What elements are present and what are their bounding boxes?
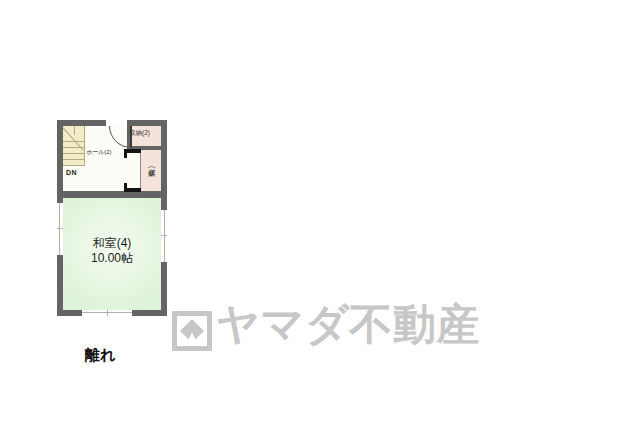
- storage2-label: 収納(2): [129, 129, 150, 138]
- stairs-down-label: DN: [66, 169, 77, 176]
- divider-wall: [57, 191, 167, 198]
- window-left-mid-tick: [57, 228, 63, 229]
- door-swing-arc: [109, 126, 131, 148]
- floor-plan-page: 収納(3): [0, 0, 640, 445]
- washitsu-room-name: 和室(4): [63, 236, 161, 251]
- building-caption: 離れ: [85, 346, 115, 365]
- closet-opening-bottom-tick: [124, 183, 127, 188]
- window-right: [161, 210, 167, 262]
- storage3-floor: 収納(3): [141, 150, 161, 191]
- washitsu-room-label: 和室(4) 10.00帖: [63, 236, 161, 266]
- washitsu-room-area: 10.00帖: [63, 251, 161, 266]
- window-bottom: [82, 310, 132, 316]
- window-bottom-mid-tick: [107, 310, 108, 316]
- yamada-diamond-logo-icon: [172, 311, 212, 351]
- closet-opening-top-tick: [124, 153, 127, 158]
- stair-winder-line: [74, 126, 75, 135]
- closet-opening-bottom-bracket: [124, 188, 141, 192]
- window-right-center-line: [164, 210, 165, 262]
- window-right-mid-tick: [161, 235, 167, 236]
- storage3-label: 収納(3): [147, 164, 156, 177]
- window-left-center-line: [59, 203, 60, 255]
- watermark-brand-text: ヤマダ不動産: [216, 301, 480, 348]
- top-wall-left-segment: [57, 120, 106, 126]
- hall-label: ホール(2): [86, 148, 112, 157]
- storage3-partition-line: [140, 150, 141, 191]
